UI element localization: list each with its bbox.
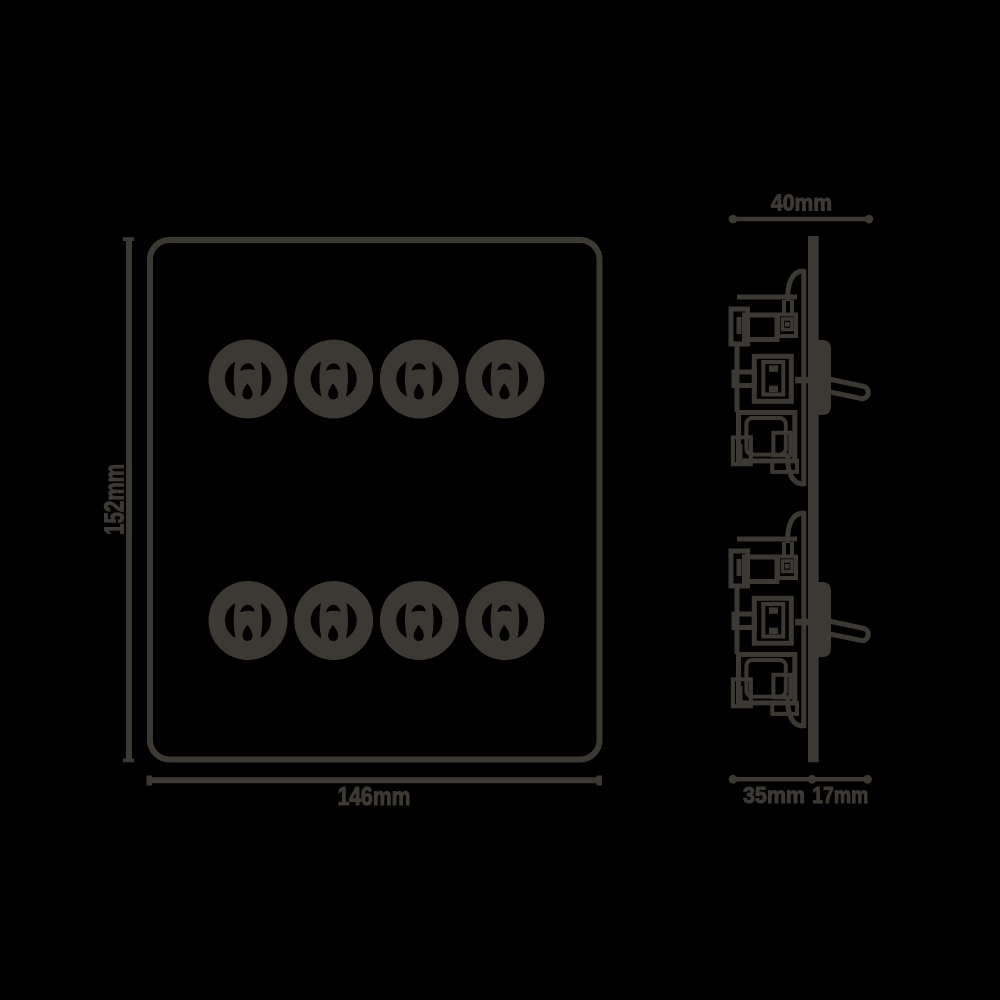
svg-text:40mm: 40mm <box>771 190 832 216</box>
svg-text:146mm: 146mm <box>338 781 411 811</box>
svg-text:152mm: 152mm <box>99 464 130 535</box>
svg-text:35mm: 35mm <box>743 782 805 808</box>
svg-text:17mm: 17mm <box>812 782 868 808</box>
